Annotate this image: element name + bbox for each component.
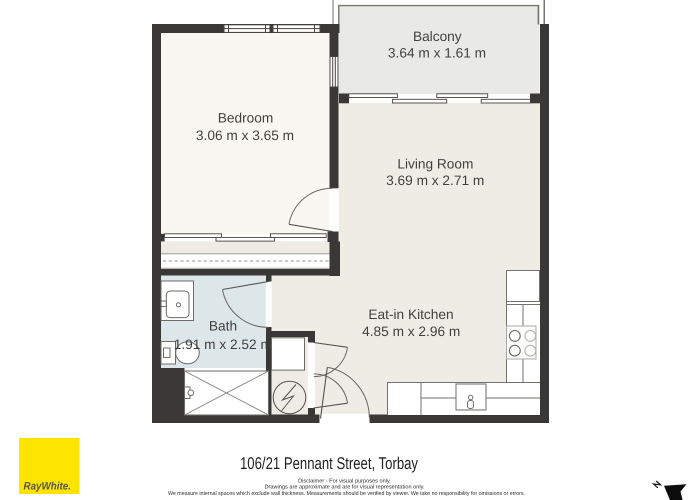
svg-text:3.06 m x 3.65 m: 3.06 m x 3.65 m — [196, 128, 294, 143]
svg-text:RayWhite.: RayWhite. — [24, 480, 72, 492]
svg-text:4.85 m x 2.96 m: 4.85 m x 2.96 m — [362, 324, 460, 339]
svg-text:Disclaimer - For visual purpos: Disclaimer - For visual purposes only. — [298, 478, 391, 485]
svg-text:106/21 Pennant Street, Torbay: 106/21 Pennant Street, Torbay — [240, 454, 418, 473]
svg-text:3.69 m x 2.71 m: 3.69 m x 2.71 m — [386, 173, 484, 188]
svg-text:1.91 m x 2.52 m: 1.91 m x 2.52 m — [174, 337, 272, 352]
svg-text:Bath: Bath — [209, 319, 237, 334]
svg-text:Eat-in Kitchen: Eat-in Kitchen — [368, 307, 453, 322]
svg-text:3.64 m x 1.61 m: 3.64 m x 1.61 m — [388, 45, 486, 60]
svg-text:Drawings are approximate and a: Drawings are approximate and are for vis… — [264, 484, 424, 491]
svg-text:Living Room: Living Room — [397, 156, 473, 171]
svg-text:We measure internal spaces whi: We measure internal spaces which exclude… — [168, 490, 525, 497]
svg-text:Balcony: Balcony — [413, 29, 462, 44]
svg-text:Bedroom: Bedroom — [218, 110, 274, 125]
